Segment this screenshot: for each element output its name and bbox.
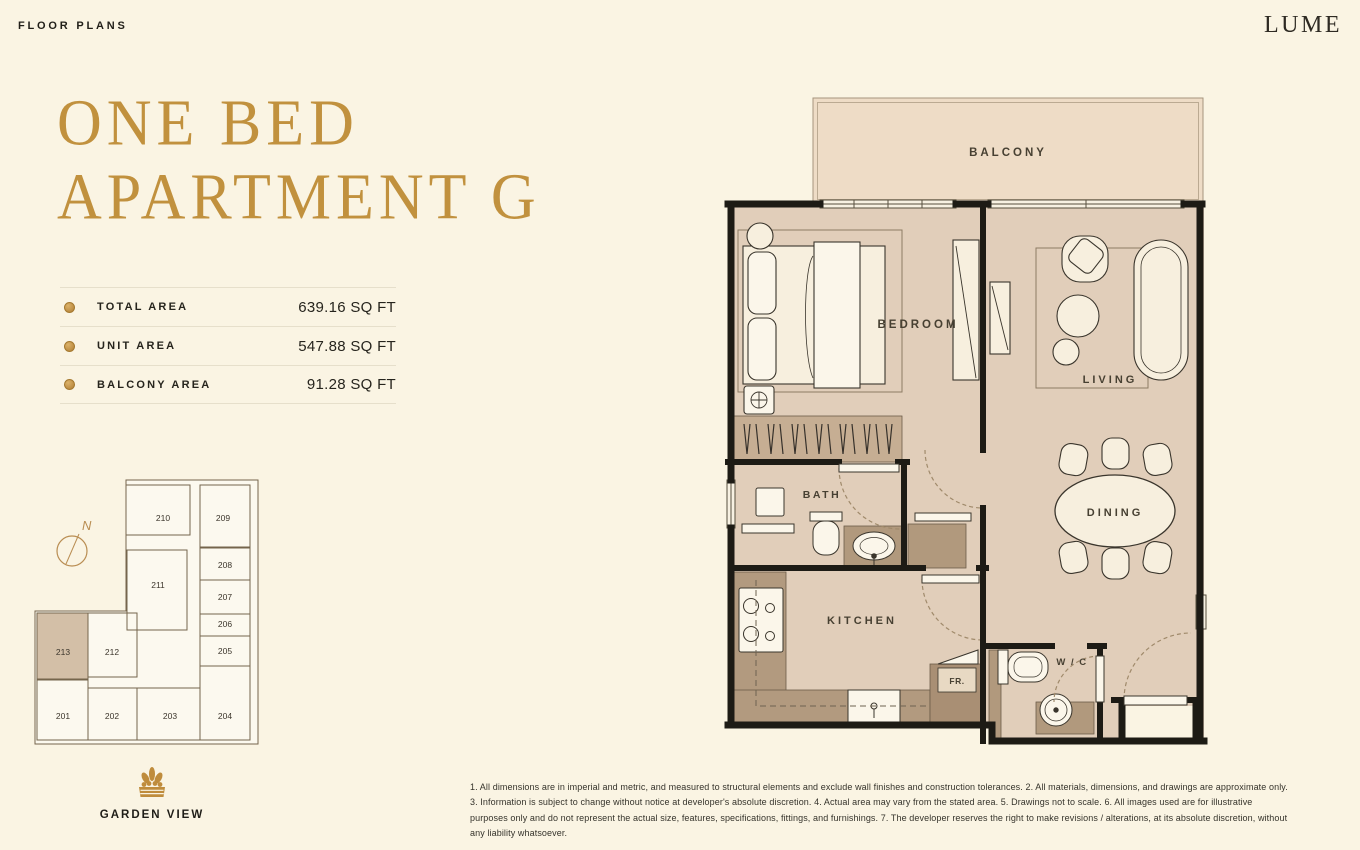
room-label-bath: BATH [803, 489, 841, 501]
unit-label-206: 206 [218, 619, 232, 629]
unit-label-210: 210 [156, 513, 170, 523]
room-label-kitchen: KITCHEN [827, 615, 897, 627]
bullet-icon [64, 341, 75, 352]
area-value: 639.16 SQ FT [298, 299, 396, 316]
garden-view-marker: GARDEN VIEW [88, 766, 216, 821]
area-label: UNIT AREA [97, 340, 176, 352]
unit-label-203: 203 [163, 711, 177, 721]
brochure-page: { "header": { "eyebrow": "FLOOR PLANS", … [0, 0, 1360, 850]
unit-label-201: 201 [56, 711, 70, 721]
unit-label-202: 202 [105, 711, 119, 721]
floorplan-diagram: BALCONY BEDROOM LIVING BATH DINING KITCH… [710, 90, 1230, 760]
bullet-icon [64, 379, 75, 390]
room-label-balcony: BALCONY [969, 147, 1047, 159]
garden-view-icon [133, 766, 171, 798]
unit-label-209: 209 [216, 513, 230, 523]
page-eyebrow: FLOOR PLANS [18, 20, 128, 32]
area-row-unit: UNIT AREA 547.88 SQ FT [60, 326, 396, 365]
keyplan-diagram: N 210 209 211 208 207 206 205 204 213 2 [32, 470, 272, 762]
unit-label-212: 212 [105, 647, 119, 657]
unit-label-211: 211 [151, 580, 165, 590]
page-title: ONE BED APARTMENT G [57, 86, 541, 234]
bullet-icon [64, 302, 75, 313]
compass-north-label: N [82, 518, 92, 533]
area-row-total: TOTAL AREA 639.16 SQ FT [60, 287, 396, 326]
title-line-1: ONE BED [57, 86, 541, 160]
unit-213-highlight [37, 613, 88, 679]
garden-view-label: GARDEN VIEW [88, 809, 216, 821]
unit-label-205: 205 [218, 646, 232, 656]
unit-label-213: 213 [56, 647, 70, 657]
unit-label-207: 207 [218, 592, 232, 602]
room-label-dining: DINING [1087, 507, 1144, 519]
room-label-bedroom: BEDROOM [877, 319, 958, 331]
unit-label-208: 208 [218, 560, 232, 570]
legal-disclaimer: 1. All dimensions are in imperial and me… [470, 780, 1290, 841]
area-value: 547.88 SQ FT [298, 338, 396, 355]
entry-recess [1122, 706, 1196, 738]
title-line-2: APARTMENT G [57, 160, 541, 234]
room-label-fridge: FR. [949, 676, 964, 686]
area-table: TOTAL AREA 639.16 SQ FT UNIT AREA 547.88… [60, 287, 396, 404]
compass-icon [57, 534, 87, 566]
area-label: TOTAL AREA [97, 301, 188, 313]
area-label: BALCONY AREA [97, 379, 211, 391]
area-row-balcony: BALCONY AREA 91.28 SQ FT [60, 365, 396, 404]
unit-label-204: 204 [218, 711, 232, 721]
room-label-wc: W / C [1056, 657, 1087, 668]
room-label-living: LIVING [1083, 374, 1138, 386]
area-value: 91.28 SQ FT [307, 376, 396, 393]
brand-logo: LUME [1264, 12, 1342, 39]
